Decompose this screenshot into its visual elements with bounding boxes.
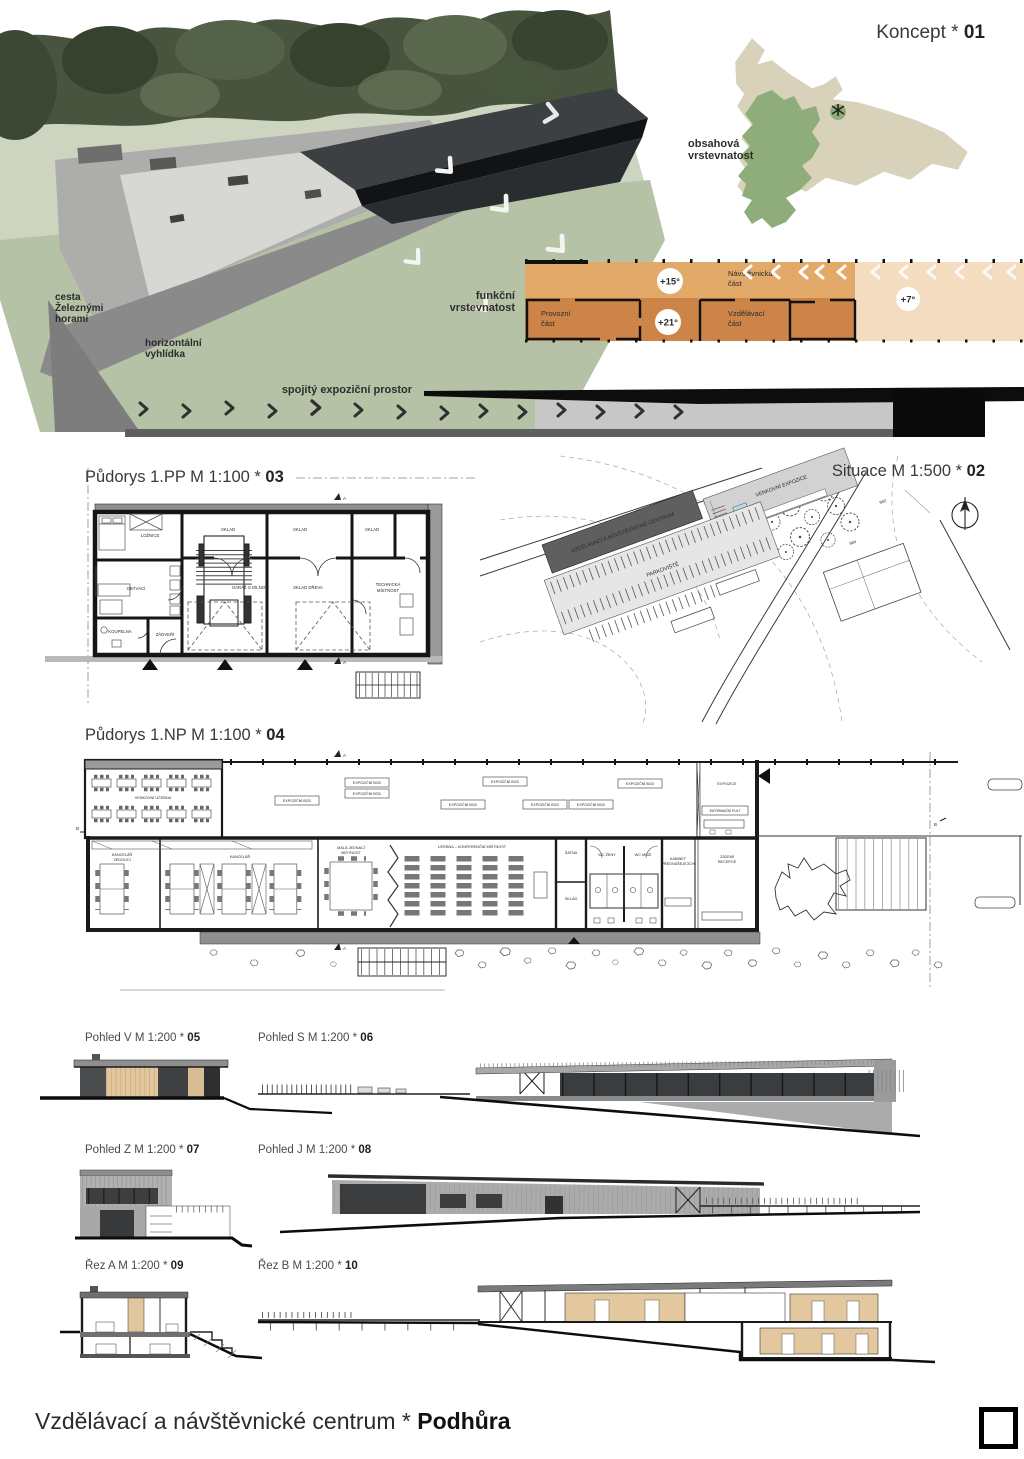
contour-label-904: 904 xyxy=(849,539,858,546)
pp-room-zadveri: ZÁDVEŘÍ xyxy=(156,632,175,637)
pp-room-technicka-l1: TECHNICKÁ xyxy=(376,582,401,587)
project-title: Vzdělávací a návštěvnické centrum * Podh… xyxy=(35,1408,511,1435)
render-road-label: cesta Železnými horami xyxy=(55,292,103,325)
koncept-title-text: Koncept * xyxy=(876,22,964,43)
np-stones xyxy=(210,948,942,969)
render-lookout-label: horizontální vyhlídka xyxy=(145,338,202,360)
np-mala-l2: MÍSTNOST xyxy=(341,851,361,855)
np-meeting-room xyxy=(327,859,376,914)
np-sklad: SKLAD xyxy=(565,897,578,901)
plan-1np: VENKOVNÍ UČEBNA EXPOZIČNÍ BOD EXPOZIČNÍ … xyxy=(76,750,1022,990)
np-kabinet-desk xyxy=(665,898,691,906)
pp-section-a-top: A xyxy=(343,496,346,501)
contour-label-902: 902 xyxy=(879,498,888,505)
np-expo-room: EXPOZICE INFORMAČNÍ PULT xyxy=(697,760,757,934)
exposition-label-text: spojitý expoziční prostor xyxy=(282,384,412,396)
pp-title-text: Půdorys 1.PP M 1:100 * xyxy=(85,468,265,486)
np-kancelar: KANCELÁŘ xyxy=(230,854,251,859)
functional-diagram: +15° +21° +7° Návštěvnická část Provozní… xyxy=(525,261,1024,341)
rez-a-title: Řez A M 1:200 * 09 xyxy=(85,1260,183,1272)
pp-stairs xyxy=(356,672,420,698)
np-kancelar-ved-l2: VEDOUCÍ xyxy=(113,858,131,862)
render-lookout-l2: vyhlídka xyxy=(145,349,202,360)
expo-bod-label: EXPOZIČNÍ BOD xyxy=(626,781,655,786)
pohled-s-num: 06 xyxy=(360,1032,373,1044)
render-road-l2: Železnými xyxy=(55,303,103,314)
np-entrance-arrow xyxy=(758,768,770,784)
expo-bod-label: EXPOZIČNÍ BOD xyxy=(449,802,478,807)
np-zazemi-l1: ZÁZEMÍ xyxy=(720,855,735,859)
koncept-title: Koncept * 01 xyxy=(876,22,985,44)
np-wc-zeny: WC ŽENY xyxy=(598,852,616,857)
pp-title-num: 03 xyxy=(265,468,283,486)
pohled-j-title: Pohled J M 1:200 * 08 xyxy=(258,1144,371,1156)
zone-edu-l1: Vzdělávací xyxy=(728,309,766,318)
expo-bod-label: EXPOZIČNÍ BOD xyxy=(491,779,520,784)
pohled-s-text: Pohled S M 1:200 * xyxy=(258,1032,360,1044)
pohled-z-text: Pohled Z M 1:200 * xyxy=(85,1144,187,1156)
pohled-v-title: Pohled V M 1:200 * 05 xyxy=(85,1032,200,1044)
project-title-bold: Podhůra xyxy=(417,1408,510,1434)
rez-a-num: 09 xyxy=(171,1260,184,1272)
b-lower-level xyxy=(740,1322,892,1358)
project-title-text: Vzdělávací a návštěvnické centrum * xyxy=(35,1408,417,1434)
pohled-v-text: Pohled V M 1:200 * xyxy=(85,1032,187,1044)
np-expozice-label: EXPOZICE xyxy=(717,782,737,786)
np-section-a-bottom: A xyxy=(343,946,346,951)
np-kancelar-ved-l1: KANCELÁŘ xyxy=(112,852,133,857)
np-satna: ŠATNA xyxy=(565,850,578,855)
pohled-s-title: Pohled S M 1:200 * 06 xyxy=(258,1032,373,1044)
np-section-b-left: B xyxy=(76,826,79,831)
rez-a-text: Řez A M 1:200 * xyxy=(85,1260,171,1272)
north-arrow xyxy=(952,497,978,530)
pp-room-koupelna: KOUPELNA xyxy=(108,629,132,634)
pohled-v-num: 05 xyxy=(187,1032,200,1044)
expo-bod-label: EXPOZIČNÍ BOD xyxy=(531,802,560,807)
np-section-b-right: B xyxy=(934,822,937,827)
functional-layering-label: funkční vrstevnatost xyxy=(430,290,515,314)
registration-mark xyxy=(979,1407,1018,1449)
np-terasa-label: VENKOVNÍ UČEBNA xyxy=(135,795,172,800)
map-layering-l1: obsahová xyxy=(688,138,753,150)
render-lookout-l1: horizontální xyxy=(145,338,202,349)
elevation-j xyxy=(280,1176,920,1232)
section-b xyxy=(258,1280,935,1362)
pp-room-sklad-2: SKLAD xyxy=(293,527,307,532)
temp-15: +15° xyxy=(660,277,680,288)
render-road-l1: cesta xyxy=(55,292,103,303)
zone-oper-l2: část xyxy=(541,319,556,328)
section-a xyxy=(60,1286,262,1358)
np-room-labels: KANCELÁŘ VEDOUCÍ KANCELÁŘ MALÁ JEDNACÍ M… xyxy=(112,844,737,901)
np-title-text: Půdorys 1.NP M 1:100 * xyxy=(85,726,266,744)
np-lecture-seats xyxy=(412,856,547,918)
np-expo-points: EXPOZIČNÍ BOD EXPOZIČNÍ BOD EXPOZIČNÍ BO… xyxy=(275,777,662,809)
pp-title: Půdorys 1.PP M 1:100 * 03 xyxy=(85,468,284,487)
pohled-z-title: Pohled Z M 1:200 * 07 xyxy=(85,1144,199,1156)
temp-7: +7° xyxy=(901,295,916,306)
np-recepce-desk xyxy=(702,912,742,920)
np-pult-label: INFORMAČNÍ PULT xyxy=(710,808,741,813)
zone-edu-l2: část xyxy=(728,319,743,328)
pp-room-garaz: GARÁŽ S DÍLNOU xyxy=(232,585,268,590)
presentation-board: +15° +21° +7° Návštěvnická část Provozní… xyxy=(0,0,1024,1459)
np-title-num: 04 xyxy=(266,726,284,744)
situace-title: Situace M 1:500 * 02 xyxy=(832,462,985,481)
expo-bod-label: EXPOZIČNÍ BOD xyxy=(353,791,382,796)
situace-title-num: 02 xyxy=(967,462,985,480)
np-folding-wall xyxy=(388,845,398,927)
expo-bod-label: EXPOZIČNÍ BOD xyxy=(283,798,312,803)
map-layering-l2: vrstevnatost xyxy=(688,150,753,162)
concept-map xyxy=(735,38,968,228)
np-mala-l1: MALÁ JEDNACÍ xyxy=(337,846,366,850)
map-layering-label: obsahová vrstevnatost xyxy=(688,138,753,162)
plan-1pp: LOŽNICE OBÝVACÍ KOUPELNA ZÁDVEŘÍ SKLAD S… xyxy=(45,468,478,706)
np-wc-muzi: WC MUŽI xyxy=(635,852,652,857)
np-kabinet-l2: PŘEDNÁŠEJÍCÍCH xyxy=(661,861,694,866)
situace-title-text: Situace M 1:500 * xyxy=(832,462,967,480)
np-kabinet-l1: KABINET xyxy=(670,857,687,861)
rez-b-text: Řez B M 1:200 * xyxy=(258,1260,345,1272)
np-zazemi-l2: RECEPCE xyxy=(718,860,737,864)
exposition-label: spojitý expoziční prostor xyxy=(240,385,412,396)
pohled-j-text: Pohled J M 1:200 * xyxy=(258,1144,358,1156)
pp-room-technicka-l2: MÍSTNOST xyxy=(377,588,400,593)
np-title: Půdorys 1.NP M 1:100 * 04 xyxy=(85,726,285,745)
zone-oper-l1: Provozní xyxy=(541,309,572,318)
elevation-z xyxy=(75,1170,252,1246)
elevation-s xyxy=(258,1059,920,1136)
aerial-render xyxy=(0,10,665,432)
np-stairs xyxy=(358,948,446,976)
np-office-furniture xyxy=(92,841,312,914)
render-road-l3: horami xyxy=(55,314,103,325)
pohled-j-num: 08 xyxy=(358,1144,371,1156)
elevation-v xyxy=(40,1054,332,1113)
pp-room-loznice: LOŽNICE xyxy=(141,533,160,538)
expo-bod-label: EXPOZIČNÍ BOD xyxy=(577,802,606,807)
expo-bod-label: EXPOZIČNÍ BOD xyxy=(353,780,382,785)
np-ucebna: UČEBNA – KONFERENČNÍ MÍSTNOST xyxy=(438,844,507,849)
pp-room-obyvaci: OBÝVACÍ xyxy=(127,586,147,591)
functional-l2: vrstevnatost xyxy=(430,302,515,314)
pp-room-sklad-3: SKLAD xyxy=(365,527,379,532)
rez-b-title: Řez B M 1:200 * 10 xyxy=(258,1260,358,1272)
np-retaining-wall xyxy=(200,932,760,944)
np-section-a-top: A xyxy=(343,753,346,758)
pp-section-a-bottom: A xyxy=(343,660,346,665)
zone-visitor-l2: část xyxy=(728,279,743,288)
np-deck xyxy=(757,779,1022,910)
functional-l1: funkční xyxy=(430,290,515,302)
pohled-z-num: 07 xyxy=(187,1144,200,1156)
pp-room-sklad-dreva: SKLAD DŘEVA xyxy=(293,585,323,590)
pp-room-sklad-1: SKLAD xyxy=(221,527,235,532)
temp-21: +21° xyxy=(658,318,678,329)
rez-b-num: 10 xyxy=(345,1260,358,1272)
koncept-title-num: 01 xyxy=(964,22,985,43)
